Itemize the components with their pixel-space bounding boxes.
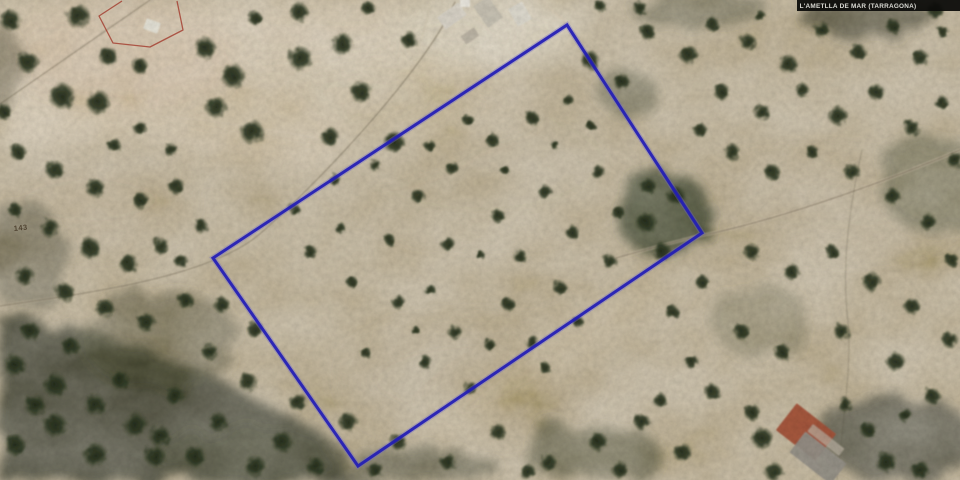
satellite-image: 143 L'AMETLLA DE MAR (TARRAGONA)	[0, 0, 960, 480]
photo-grain	[0, 0, 960, 480]
parcel-number-label: 143	[13, 223, 28, 233]
municipality-label: L'AMETLLA DE MAR (TARRAGONA)	[797, 0, 960, 11]
municipality-label-text: L'AMETLLA DE MAR (TARRAGONA)	[800, 3, 917, 10]
aerial-parcel-map[interactable]: 143 L'AMETLLA DE MAR (TARRAGONA)	[0, 0, 960, 480]
